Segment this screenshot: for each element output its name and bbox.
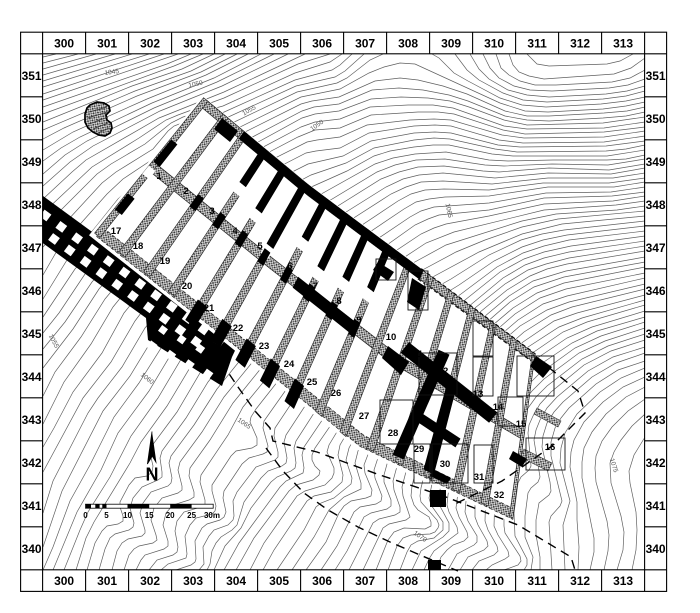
svg-text:349: 349: [646, 155, 666, 169]
svg-text:347: 347: [646, 241, 666, 255]
svg-text:303: 303: [183, 574, 203, 588]
svg-text:23: 23: [259, 341, 270, 352]
svg-text:25: 25: [307, 377, 318, 388]
svg-text:15: 15: [516, 419, 527, 430]
svg-text:10: 10: [386, 332, 397, 343]
svg-text:307: 307: [355, 36, 375, 50]
svg-text:311: 311: [527, 36, 547, 50]
svg-text:341: 341: [646, 499, 666, 513]
svg-text:304: 304: [226, 574, 246, 588]
svg-text:348: 348: [646, 198, 666, 212]
svg-text:350: 350: [646, 112, 666, 126]
svg-text:24: 24: [284, 359, 295, 370]
svg-text:9: 9: [356, 315, 361, 326]
svg-text:311: 311: [527, 574, 547, 588]
svg-text:342: 342: [22, 456, 42, 470]
svg-text:4: 4: [232, 226, 238, 237]
svg-text:307: 307: [355, 574, 375, 588]
svg-text:28: 28: [388, 428, 399, 439]
svg-text:344: 344: [22, 370, 42, 384]
svg-text:342: 342: [646, 456, 666, 470]
svg-text:308: 308: [398, 36, 418, 50]
svg-text:27: 27: [359, 411, 370, 422]
svg-text:15: 15: [145, 511, 154, 520]
svg-text:340: 340: [646, 542, 666, 556]
svg-text:18: 18: [133, 241, 144, 252]
svg-text:5: 5: [104, 511, 109, 520]
svg-text:310: 310: [484, 36, 504, 50]
svg-text:341: 341: [22, 499, 42, 513]
svg-text:346: 346: [22, 284, 42, 298]
svg-text:3: 3: [209, 206, 214, 217]
svg-text:21: 21: [204, 303, 215, 314]
svg-text:20: 20: [182, 281, 193, 292]
svg-text:26: 26: [331, 388, 342, 399]
svg-text:310: 310: [484, 574, 504, 588]
svg-text:25: 25: [187, 511, 196, 520]
svg-text:302: 302: [140, 36, 160, 50]
svg-text:17: 17: [111, 226, 122, 237]
svg-text:5: 5: [257, 241, 263, 252]
svg-text:309: 309: [441, 574, 461, 588]
svg-text:345: 345: [646, 327, 666, 341]
svg-text:304: 304: [226, 36, 246, 50]
svg-text:343: 343: [646, 413, 666, 427]
svg-text:20: 20: [166, 511, 175, 520]
svg-text:312: 312: [570, 36, 590, 50]
svg-text:313: 313: [613, 574, 633, 588]
svg-text:305: 305: [269, 36, 289, 50]
svg-text:344: 344: [646, 370, 666, 384]
svg-text:11: 11: [413, 349, 424, 360]
svg-text:29: 29: [414, 444, 425, 455]
svg-text:30: 30: [440, 459, 451, 470]
svg-text:302: 302: [140, 574, 160, 588]
svg-text:306: 306: [312, 574, 332, 588]
svg-text:14: 14: [493, 402, 504, 413]
svg-text:7: 7: [312, 281, 317, 292]
svg-text:348: 348: [22, 198, 42, 212]
svg-text:16: 16: [545, 442, 556, 453]
svg-text:346: 346: [646, 284, 666, 298]
svg-text:350: 350: [22, 112, 42, 126]
svg-text:308: 308: [398, 574, 418, 588]
svg-text:31: 31: [474, 472, 485, 483]
svg-text:0: 0: [83, 511, 88, 520]
svg-text:347: 347: [22, 241, 42, 255]
svg-text:30m: 30m: [204, 511, 220, 520]
svg-text:349: 349: [22, 155, 42, 169]
svg-text:19: 19: [160, 256, 171, 267]
svg-text:12: 12: [438, 366, 449, 377]
svg-text:1: 1: [156, 171, 162, 182]
svg-text:303: 303: [183, 36, 203, 50]
svg-text:N: N: [146, 465, 159, 485]
svg-text:351: 351: [646, 69, 666, 83]
svg-text:351: 351: [22, 69, 42, 83]
svg-text:340: 340: [22, 542, 42, 556]
svg-text:301: 301: [97, 574, 117, 588]
svg-text:345: 345: [22, 327, 42, 341]
svg-text:306: 306: [312, 36, 332, 50]
svg-text:10: 10: [123, 511, 132, 520]
svg-text:309: 309: [441, 36, 461, 50]
svg-text:305: 305: [269, 574, 289, 588]
svg-text:313: 313: [613, 36, 633, 50]
svg-text:312: 312: [570, 574, 590, 588]
svg-text:2: 2: [183, 186, 188, 197]
svg-text:8: 8: [336, 296, 341, 307]
svg-text:13: 13: [473, 389, 484, 400]
svg-text:301: 301: [97, 36, 117, 50]
svg-text:6: 6: [287, 261, 292, 272]
svg-text:32: 32: [494, 490, 505, 501]
svg-text:300: 300: [54, 36, 74, 50]
svg-text:300: 300: [54, 574, 74, 588]
svg-text:343: 343: [22, 413, 42, 427]
svg-text:22: 22: [233, 323, 244, 334]
